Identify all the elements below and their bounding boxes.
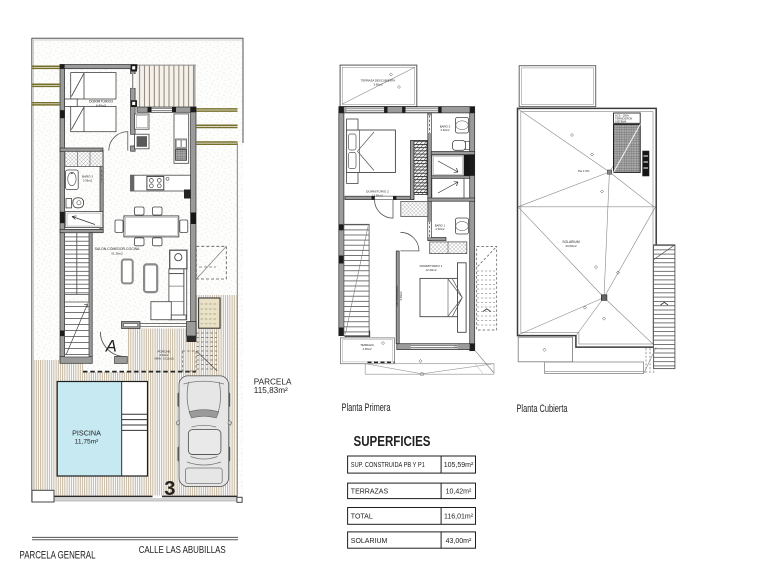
svg-text:A: A	[105, 338, 117, 356]
svg-text:12.50m2: 12.50m2	[372, 193, 383, 197]
svg-text:SUP. CONSTRUIDA PB Y P1: SUP. CONSTRUIDA PB Y P1	[351, 462, 425, 469]
svg-text:TOTAL: TOTAL	[351, 514, 373, 521]
svg-text:SUPERFICIES: SUPERFICIES	[354, 433, 431, 450]
svg-text:CALLE LAS ABUBILLAS: CALLE LAS ABUBILLAS	[139, 545, 226, 556]
svg-text:43,00m2: 43,00m2	[565, 244, 577, 248]
svg-text:DISTRIBUIDOR: DISTRIBUIDOR	[395, 286, 399, 307]
svg-text:8.49m2: 8.49m2	[96, 104, 107, 108]
svg-text:SOLARIUM: SOLARIUM	[351, 538, 388, 545]
svg-text:12.40m2: 12.40m2	[426, 268, 437, 272]
svg-text:4.45m2: 4.45m2	[399, 291, 403, 300]
svg-text:BAÑO 1: BAÑO 1	[435, 223, 446, 228]
svg-text:3.90m2: 3.90m2	[374, 82, 383, 86]
svg-text:116,01m²: 116,01m²	[444, 514, 474, 521]
svg-text:SISTEMA: SISTEMA	[615, 120, 627, 124]
svg-text:43,00m²: 43,00m²	[446, 538, 472, 545]
svg-text:3.40m2: 3.40m2	[441, 128, 450, 132]
svg-text:TERRAZAS: TERRAZAS	[351, 489, 389, 496]
svg-text:10,42m²: 10,42m²	[446, 489, 472, 496]
svg-text:4.04m2: 4.04m2	[160, 353, 169, 357]
svg-text:PISCINA: PISCINA	[72, 429, 101, 438]
svg-text:Planta Primera: Planta Primera	[342, 402, 391, 414]
svg-text:PORCHE: PORCHE	[158, 350, 171, 354]
svg-text:115,83m²: 115,83m²	[254, 386, 288, 395]
svg-text:PARCELA GENERAL: PARCELA GENERAL	[20, 550, 96, 562]
svg-text:(40%t - 10.11m2): (40%t - 10.11m2)	[154, 358, 173, 361]
svg-text:TERRAZA DESCUBIERTA: TERRAZA DESCUBIERTA	[361, 79, 395, 83]
svg-text:2.92m2: 2.92m2	[436, 227, 445, 231]
svg-text:105,59m²: 105,59m²	[444, 462, 474, 469]
svg-text:TERRAZA: TERRAZA	[360, 343, 374, 347]
svg-text:4.35m2: 4.35m2	[363, 347, 372, 351]
svg-text:PARCELA: PARCELA	[254, 377, 292, 386]
svg-text:Pte 1.5%: Pte 1.5%	[578, 169, 590, 173]
svg-text:11,75m²: 11,75m²	[75, 439, 100, 446]
svg-text:SALON-COMEDOR-COCINA: SALON-COMEDOR-COCINA	[95, 247, 140, 251]
svg-text:31.35m2: 31.35m2	[111, 251, 123, 255]
svg-text:3.36m2: 3.36m2	[83, 178, 93, 182]
svg-text:Planta Cubierta: Planta Cubierta	[517, 403, 568, 415]
svg-text:BAÑO 3: BAÑO 3	[440, 124, 451, 129]
svg-text:SOLARIUM: SOLARIUM	[562, 240, 579, 244]
